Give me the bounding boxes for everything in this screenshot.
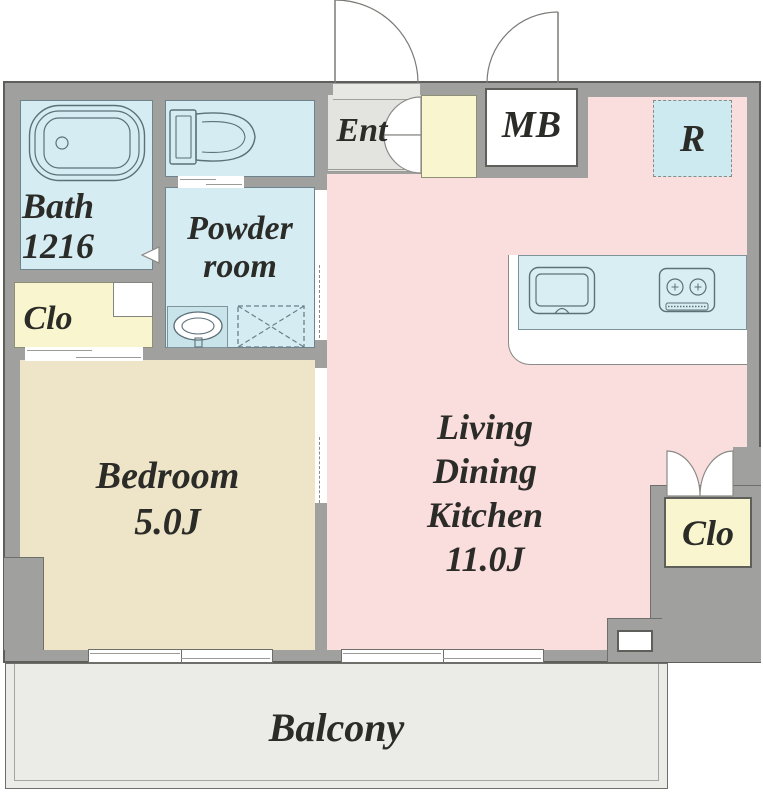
floorplan: Balcony Bath1216 Powderroom Clo Bedroom5… [0, 0, 763, 800]
bathtub-icon [28, 104, 146, 182]
kitchen-sink-icon [528, 266, 596, 318]
bedroom-wall-jog [4, 557, 44, 650]
washbasin-icon [168, 307, 229, 349]
closet-left-label: Clo [12, 300, 84, 338]
balcony: Balcony [5, 663, 668, 789]
bedroom-window [88, 649, 273, 663]
living-window [341, 649, 544, 663]
closet-right-label: Clo [664, 513, 752, 553]
bath-folding-door-icon [139, 245, 161, 265]
closet-left-sliding-door [25, 347, 143, 361]
entrance-door-swing-icon [329, 0, 424, 84]
powder-room-label: Powderroom [165, 210, 315, 286]
pipe-space [617, 630, 653, 652]
meterbox-door-swing-icon [486, 8, 563, 84]
closet-right-double-door-icon [665, 449, 735, 497]
closet-left-notch [113, 282, 153, 317]
stove-icon [658, 267, 716, 317]
bedroom-label: Bedroom5.0J [20, 453, 315, 546]
toilet-sliding-door [178, 176, 244, 188]
powder-room-sliding-door [315, 190, 327, 340]
entrance-label: Ent [326, 112, 398, 150]
ldk-label: LivingDining Kitchen11.0J [330, 406, 640, 582]
bath-label: Bath1216 [22, 186, 94, 267]
shoe-cabinet [421, 95, 477, 178]
balcony-label: Balcony [6, 706, 667, 751]
refrigerator-label: R [653, 118, 732, 161]
washing-machine-icon [236, 304, 306, 349]
washbasin-counter [167, 306, 228, 348]
meter-box-label: MB [485, 104, 578, 147]
bedroom-sliding-door [315, 368, 327, 503]
toilet-icon [168, 104, 264, 172]
